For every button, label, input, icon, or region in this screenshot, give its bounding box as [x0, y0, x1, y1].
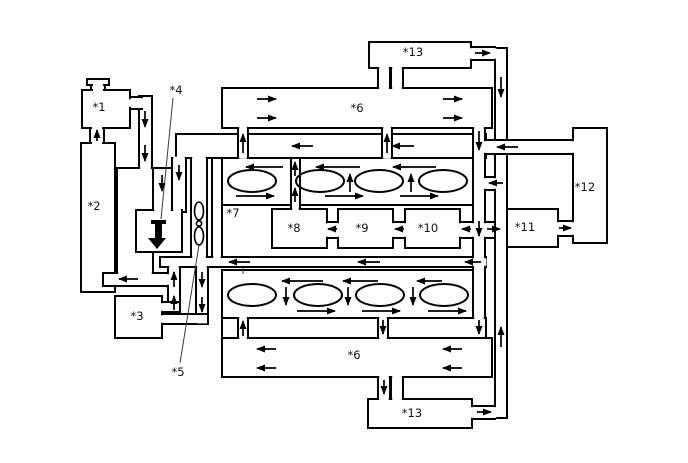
label-4: *4 [169, 83, 182, 97]
head-return-channel [176, 134, 486, 158]
top-13-leg-b [391, 68, 403, 88]
upper-cylinder-block [212, 158, 473, 205]
outer-right-pipe [495, 48, 507, 418]
suction-channel [160, 257, 486, 267]
lower-gasket-channel [222, 318, 486, 338]
connector-10-right [460, 222, 473, 238]
label-12: *12 [575, 180, 595, 194]
bottom-13-leg-b [391, 377, 403, 399]
top-13-leg-a [378, 68, 390, 88]
label-6-bottom: *6 [347, 348, 360, 362]
coolant-flow-diagram: *1 *2 *3 *4 *5 *6 *6 *7 *8 *9 *10 *11 *1… [0, 0, 688, 463]
label-11: *11 [515, 220, 535, 234]
label-13-bottom: *13 [402, 406, 422, 420]
label-3: *3 [130, 309, 143, 323]
label-9: *9 [355, 221, 368, 235]
label-8: *8 [287, 221, 300, 235]
component-1-box [82, 90, 130, 128]
label-5: *5 [171, 365, 184, 379]
coolant-flow-page: *1 *2 *3 *4 *5 *6 *6 *7 *8 *9 *10 *11 *1… [0, 0, 688, 463]
label-6-top: *6 [350, 101, 363, 115]
label-13-top: *13 [403, 45, 423, 59]
connector-8-9 [327, 222, 338, 238]
label-10: *10 [418, 221, 438, 235]
component-2-box [81, 143, 115, 292]
duct-connector-upper [162, 302, 180, 312]
top-13-shapes [369, 42, 495, 88]
label-1: *1 [92, 100, 105, 114]
label-2: *2 [87, 199, 100, 213]
connector-9-10 [393, 222, 405, 238]
block-left-wall-channel [212, 158, 222, 257]
impeller-icon [195, 202, 204, 245]
label-7: *7 [226, 206, 239, 220]
